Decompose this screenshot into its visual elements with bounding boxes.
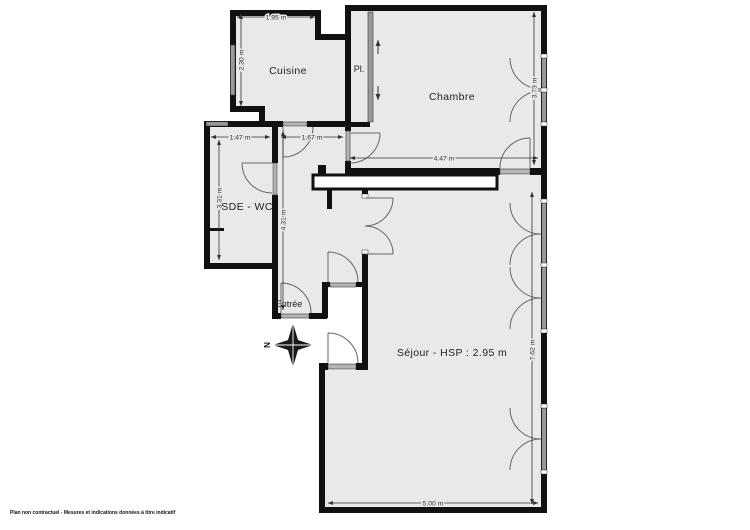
window-sejour-c <box>542 408 547 470</box>
dim-sde-width: 1.47 m <box>230 135 251 142</box>
dim-sejour-width: 5.00 m <box>423 501 444 508</box>
room-label-chambre: Chambre <box>429 91 475 103</box>
threshold-entry-door <box>281 314 309 318</box>
floor-plan-page: 1.95 m 2.30 m 1.47 m 1.67 m 3.31 m 4.31 … <box>0 0 750 530</box>
threshold-cuisine-door <box>283 122 307 126</box>
window-sejour-b <box>542 267 547 329</box>
room-label-placard: Pl. <box>354 64 365 74</box>
dim-cuisine-width: 1.95 m <box>266 15 287 22</box>
dim-corridor-height: 4.31 m <box>281 209 288 230</box>
room-label-sejour: Séjour - HSP : 2.95 m <box>397 347 507 359</box>
partition-stub-top <box>318 165 326 175</box>
dim-hall-width: 1.67 m <box>302 135 323 142</box>
window-sejour-a <box>542 203 547 265</box>
window-chambre-a <box>542 58 547 88</box>
threshold-sejour-door <box>328 364 356 369</box>
north-label: N <box>263 342 272 348</box>
dim-sejour-height: 7.62 m <box>530 339 537 360</box>
threshold-chambre-sejour-door <box>500 169 530 174</box>
sejour-entry-door-swing <box>328 333 358 363</box>
threshold-chambre-door <box>346 131 350 161</box>
closet-sliding-door <box>368 12 373 122</box>
threshold-sde-door <box>273 163 277 195</box>
room-label-sde-wc: SDE - WC <box>221 201 273 213</box>
threshold-nook-door <box>330 283 356 287</box>
window-chambre-b <box>542 92 547 122</box>
dim-chambre-height: 3.73 m <box>532 77 539 98</box>
partition-bar <box>313 175 497 189</box>
floor-plan-svg: 1.95 m 2.30 m 1.47 m 1.67 m 3.31 m 4.31 … <box>0 0 750 530</box>
room-fills <box>207 8 544 510</box>
window-sde-wc <box>206 122 228 126</box>
room-label-cuisine: Cuisine <box>269 65 307 77</box>
dim-cuisine-height: 2.30 m <box>239 49 246 70</box>
window-cuisine <box>231 45 236 95</box>
footer-disclaimer: Plan non contractuel - Mesures et indica… <box>10 510 176 516</box>
partition-stub-bottom <box>327 189 332 209</box>
room-label-entree: Entrée <box>276 299 303 309</box>
dim-chambre-width: 4.47 m <box>434 156 455 163</box>
compass-icon: N <box>263 323 313 367</box>
